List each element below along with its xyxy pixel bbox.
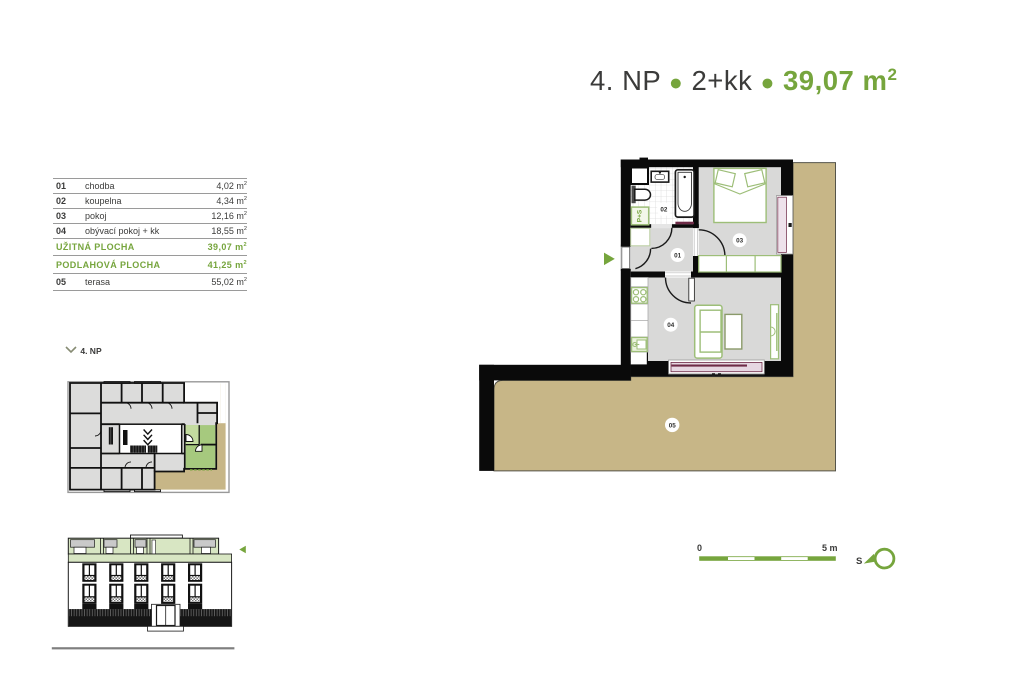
svg-text:02: 02: [660, 207, 668, 214]
svg-text:04: 04: [667, 322, 675, 329]
svg-text:05: 05: [669, 422, 677, 429]
svg-text:03: 03: [736, 238, 744, 245]
svg-text:01: 01: [674, 252, 682, 259]
svg-text:P+S: P+S: [637, 209, 644, 222]
